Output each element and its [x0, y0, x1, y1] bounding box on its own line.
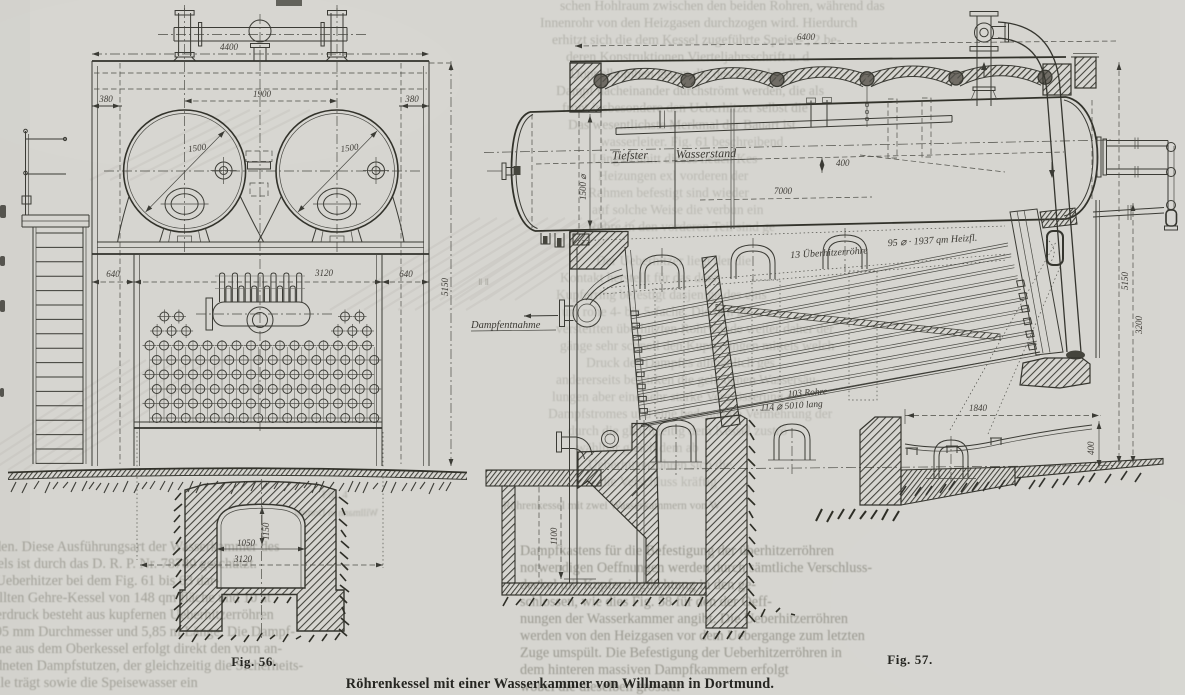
svg-text:Heizungen exl vorderen: Heizungen exl vorderen der — [598, 168, 749, 183]
svg-text:380: 380 — [404, 94, 419, 104]
svg-text:schen Hohlraum zwischen den be: schen Hohlraum zwischen den beiden Rohre… — [560, 0, 885, 13]
svg-text:400: 400 — [1086, 441, 1096, 455]
svg-text:Röhrenkessel mit einer Wasserk: Röhrenkessel mit einer Wasserkammer von … — [346, 676, 774, 692]
svg-text:Rahmen befestigt sind: Rahmen befestigt sind wieder — [588, 185, 749, 200]
svg-text:1500 ⌀: 1500 ⌀ — [578, 173, 588, 200]
svg-text:durch die gleichzeitig d: durch die gleichzeitig dem Kessel zuströ — [568, 423, 788, 438]
svg-text:640: 640 — [399, 269, 413, 279]
svg-text:3200: 3200 — [1134, 316, 1144, 336]
svg-text:Druck des Dampfes allmählic: Druck des Dampfes allmählich ges — [586, 355, 775, 370]
svg-text:4400: 4400 — [220, 42, 239, 52]
svg-text:Kessels ist durch das D. R: Kessels ist durch das D. R. P. Nr. 78780… — [0, 556, 257, 572]
svg-text:380: 380 — [98, 94, 113, 104]
svg-text:Fig. 57.: Fig. 57. — [887, 652, 933, 667]
svg-text:auf solche Weise die verbu: auf solche Weise die verbun ein — [592, 202, 764, 217]
svg-text:5150: 5150 — [1120, 272, 1130, 291]
svg-text:5150: 5150 — [440, 278, 450, 297]
svg-text:1150: 1150 — [261, 522, 271, 540]
svg-text:Innenrohr von den Heizgasen du: Innenrohr von den Heizgasen durchzogen w… — [540, 15, 858, 30]
svg-text:3120: 3120 — [233, 554, 253, 564]
svg-text:werden von den Heizgasen vor d: werden von den Heizgasen vor dem Ueberga… — [520, 628, 865, 644]
svg-text:lungen aber eine sehr st: lungen aber eine sehr starke Vergrösseru… — [552, 389, 805, 404]
svg-text:Ueberdruck besteht aus: Ueberdruck besteht aus kupfernen Ueberhi… — [0, 607, 274, 623]
svg-text:400: 400 — [836, 158, 850, 168]
svg-text:Dampfkastens für die Bef: Dampfkastens für die Befestigung der übe… — [520, 543, 834, 559]
svg-text:Ⅱ Ⅱ: Ⅱ Ⅱ — [478, 277, 489, 287]
svg-text:nungen der Wasserkammer angibt: nungen der Wasserkammer angibt. Die Uebe… — [520, 611, 848, 627]
svg-text:Tiefster: Tiefster — [612, 148, 649, 163]
svg-text:6400: 6400 — [797, 32, 816, 42]
svg-text:1050: 1050 — [237, 538, 256, 548]
svg-text:ventile trägt sowie: ventile trägt sowie die Speisewasser ein — [0, 675, 198, 691]
svg-text:640: 640 — [106, 269, 120, 279]
svg-text:1840: 1840 — [969, 403, 988, 413]
svg-text:1100: 1100 — [549, 527, 559, 545]
svg-text:1900: 1900 — [253, 89, 272, 99]
svg-text:3120: 3120 — [314, 268, 334, 278]
svg-text:Dampfentnahme: Dampfentnahme — [470, 320, 541, 331]
svg-text:Wasserstand: Wasserstand — [676, 146, 738, 161]
svg-text:Das wesentlichste Merkmal d: Das wesentlichste Merkmal der Bauart ist — [568, 117, 796, 132]
svg-text:notwendigen Oeffnungen werden: notwendigen Oeffnungen werden durch sämt… — [520, 560, 872, 576]
svg-text:Zuge umspült. Die Befestig: Zuge umspült. Die Befestigung der Ueberh… — [520, 645, 842, 661]
svg-text:7000: 7000 — [774, 186, 793, 196]
svg-text:Fig. 56.: Fig. 56. — [231, 654, 277, 669]
svg-text:von 95 mm Durchmesser und: von 95 mm Durchmesser und 5,85 m Länge. … — [0, 624, 295, 640]
